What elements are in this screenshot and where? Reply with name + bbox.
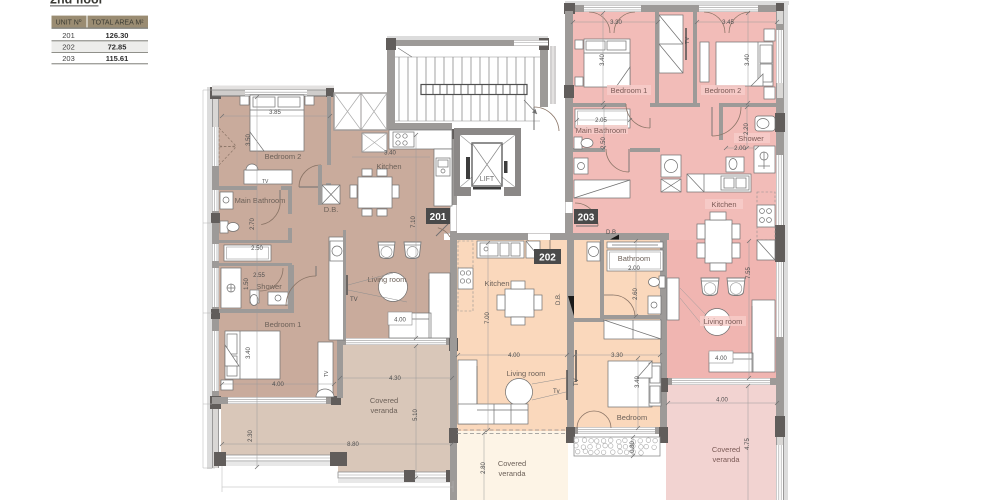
svg-text:3.40: 3.40 xyxy=(635,376,641,388)
svg-text:veranda: veranda xyxy=(498,469,526,478)
svg-text:2.55: 2.55 xyxy=(253,273,265,279)
svg-text:2.80: 2.80 xyxy=(481,462,487,474)
svg-text:4.00: 4.00 xyxy=(508,353,520,359)
svg-text:D.B.: D.B. xyxy=(556,293,562,305)
svg-text:2.70: 2.70 xyxy=(250,218,256,230)
svg-text:4.00: 4.00 xyxy=(715,356,727,362)
svg-text:2.20: 2.20 xyxy=(744,123,750,135)
svg-text:4.00: 4.00 xyxy=(394,318,406,324)
svg-text:TV: TV xyxy=(574,378,580,386)
svg-text:2.30: 2.30 xyxy=(248,430,254,442)
svg-text:Bedroom 1: Bedroom 1 xyxy=(265,320,302,329)
svg-text:2.05: 2.05 xyxy=(595,118,607,124)
svg-text:veranda: veranda xyxy=(712,455,740,464)
svg-text:2.00: 2.00 xyxy=(734,146,746,152)
svg-text:Bedroom 2: Bedroom 2 xyxy=(265,152,302,161)
svg-text:Living room: Living room xyxy=(368,275,407,284)
svg-text:3.30: 3.30 xyxy=(611,353,623,359)
svg-text:202: 202 xyxy=(539,253,556,264)
svg-text:5.10: 5.10 xyxy=(413,409,419,421)
svg-text:Shower: Shower xyxy=(256,282,282,291)
svg-text:Bedroom 1: Bedroom 1 xyxy=(611,86,648,95)
svg-text:7.55: 7.55 xyxy=(746,267,752,279)
svg-text:4.30: 4.30 xyxy=(389,376,401,382)
svg-text:Covered: Covered xyxy=(370,396,398,405)
svg-text:2.60: 2.60 xyxy=(633,288,639,300)
svg-text:203: 203 xyxy=(578,213,595,224)
svg-text:0.80: 0.80 xyxy=(630,441,636,453)
svg-text:Covered: Covered xyxy=(712,445,740,454)
svg-text:1.50: 1.50 xyxy=(244,278,250,290)
svg-text:201: 201 xyxy=(62,31,75,40)
svg-text:2.50: 2.50 xyxy=(251,246,263,252)
svg-text:TV: TV xyxy=(324,370,330,377)
svg-text:3.50: 3.50 xyxy=(246,134,252,146)
svg-text:UNIT Nº: UNIT Nº xyxy=(56,20,82,27)
svg-text:TV: TV xyxy=(350,297,358,303)
svg-text:TV: TV xyxy=(262,179,269,185)
svg-text:202: 202 xyxy=(62,43,75,52)
svg-text:3.40: 3.40 xyxy=(384,151,396,157)
svg-text:3.40: 3.40 xyxy=(246,347,252,359)
svg-text:2.00: 2.00 xyxy=(628,266,640,272)
svg-text:201: 201 xyxy=(430,212,447,223)
svg-text:4.75: 4.75 xyxy=(745,438,751,450)
svg-text:2.50: 2.50 xyxy=(601,137,607,149)
svg-text:TOTAL AREA M²: TOTAL AREA M² xyxy=(92,20,145,27)
svg-text:Living room: Living room xyxy=(704,317,743,326)
svg-text:Kitchen: Kitchen xyxy=(711,200,736,209)
svg-text:8.80: 8.80 xyxy=(347,442,359,448)
svg-text:4.00: 4.00 xyxy=(272,382,284,388)
svg-text:Main Bathroom: Main Bathroom xyxy=(235,196,286,205)
svg-text:72.85: 72.85 xyxy=(108,43,127,52)
svg-text:Bedroom 2: Bedroom 2 xyxy=(705,86,742,95)
svg-text:7.00: 7.00 xyxy=(485,312,491,324)
svg-text:Bedroom: Bedroom xyxy=(617,413,647,422)
svg-text:Shower: Shower xyxy=(738,134,764,143)
svg-text:D.B: D.B xyxy=(606,230,616,236)
svg-text:veranda: veranda xyxy=(370,406,398,415)
svg-text:Covered: Covered xyxy=(498,459,526,468)
svg-text:Living room: Living room xyxy=(507,369,546,378)
svg-text:4.00: 4.00 xyxy=(716,398,728,404)
svg-text:126.30: 126.30 xyxy=(106,31,129,40)
svg-text:3.45: 3.45 xyxy=(722,20,734,26)
svg-text:LIFT: LIFT xyxy=(480,176,495,183)
svg-text:7.10: 7.10 xyxy=(411,216,417,228)
svg-text:3.40: 3.40 xyxy=(600,54,606,66)
svg-text:203: 203 xyxy=(62,54,75,63)
svg-text:Main Bathroom: Main Bathroom xyxy=(576,126,627,135)
svg-text:3.85: 3.85 xyxy=(269,110,281,116)
svg-text:3.30: 3.30 xyxy=(610,20,622,26)
svg-text:D.B.: D.B. xyxy=(324,205,339,214)
svg-text:Bathroom: Bathroom xyxy=(618,254,651,263)
svg-text:115.61: 115.61 xyxy=(106,54,129,63)
svg-text:3.40: 3.40 xyxy=(745,54,751,66)
